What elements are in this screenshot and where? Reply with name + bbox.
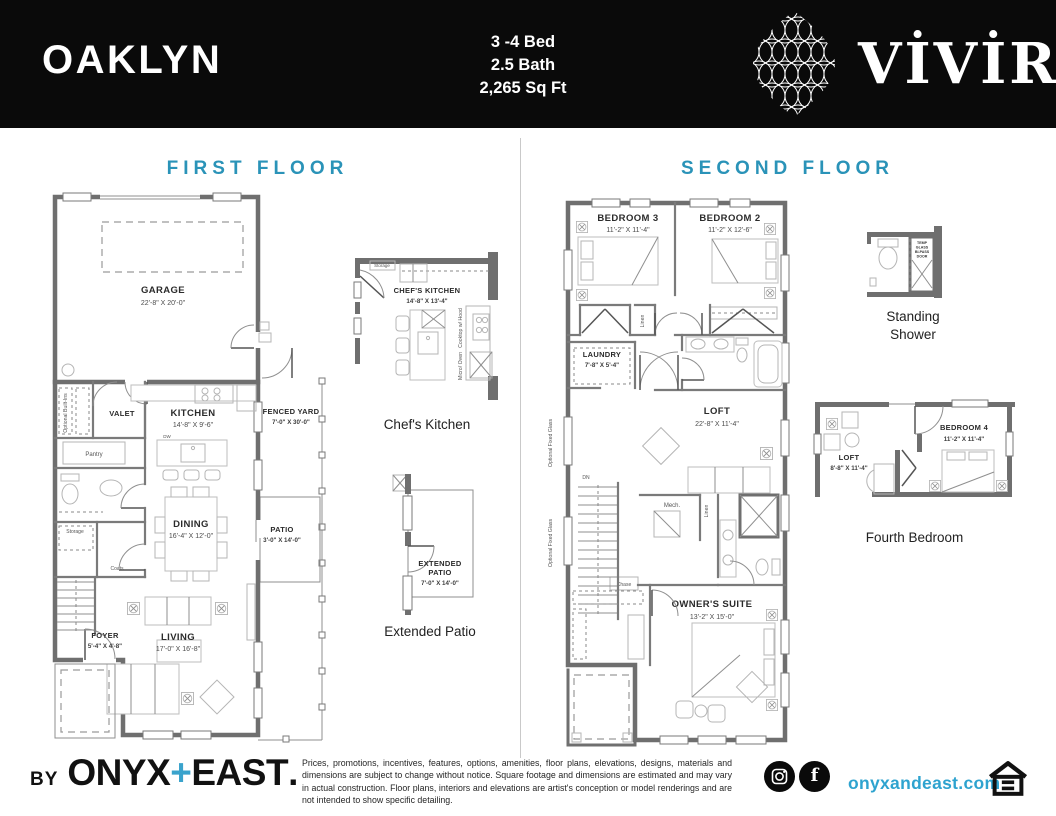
bedroom4-dims: 11'-2" X 11'-4" bbox=[944, 436, 985, 443]
dining-label: DINING bbox=[173, 519, 209, 530]
bedroom2-label: BEDROOM 2 bbox=[699, 213, 760, 224]
laundry-dims: 7'-8" X 5'-4" bbox=[585, 362, 619, 369]
shower-note-3: BI-PASS bbox=[915, 250, 930, 254]
chefs-kitchen-dims: 14'-8" X 13'-4" bbox=[406, 298, 447, 305]
vivir-flower-of-life-icon bbox=[746, 8, 842, 120]
laundry: LAUNDRY 7'-8" X 5'-4" bbox=[568, 342, 635, 388]
loft4-label: LOFT bbox=[839, 453, 860, 462]
balcony bbox=[568, 670, 635, 745]
valet-label: VALET bbox=[109, 409, 135, 418]
chefs-kitchen-label: CHEF'S KITCHEN bbox=[394, 286, 461, 295]
second-floor-title: SECOND FLOOR bbox=[670, 158, 905, 180]
garage: GARAGE 22'-8" X 20'-0" bbox=[62, 222, 271, 376]
brochure-page: OAKLYN 3 -4 Bed 2.5 Bath 2,265 Sq Ft bbox=[0, 0, 1056, 816]
hall-bathroom bbox=[655, 335, 785, 390]
kitchen: KITCHEN 14'-8" X 9'-6" DW bbox=[131, 385, 256, 480]
stairs-down: Chase DN bbox=[578, 475, 638, 619]
stat-baths: 2.5 Bath bbox=[408, 54, 638, 77]
dining-area: DINING 16'-4" X 12'-0" bbox=[155, 487, 227, 581]
fenced-yard-dims: 7'-0" X 30'-0" bbox=[272, 419, 310, 426]
mech-label: Mech. bbox=[664, 503, 681, 509]
fenced-yard-area: FENCED YARD 7'-0" X 30'-0" PATIO 3'-0" X… bbox=[258, 348, 325, 742]
shower-note-4: DOOR bbox=[917, 255, 928, 259]
linen-label-2: Linen bbox=[704, 505, 710, 518]
stat-sqft: 2,265 Sq Ft bbox=[408, 77, 638, 100]
fourth-bedroom-caption: Fourth Bedroom bbox=[812, 529, 1017, 547]
loft-label: LOFT bbox=[704, 406, 730, 417]
chefs-kitchen-caption: Chef's Kitchen bbox=[352, 416, 502, 434]
onyx-east-logo: BY ONYX + EAST . bbox=[30, 752, 298, 794]
east-label: EAST bbox=[191, 752, 288, 794]
patio-label: PATIO bbox=[270, 525, 293, 534]
front-porch bbox=[55, 664, 115, 738]
owner-bath: Linen bbox=[704, 495, 785, 585]
fenced-yard-label: FENCED YARD bbox=[263, 407, 320, 416]
owners-suite: OWNER'S SUITE 13'-2" X 15'-0" bbox=[638, 585, 778, 722]
powder-room bbox=[55, 474, 145, 522]
extended-patio-dims: 7'-0" X 14'-0" bbox=[421, 580, 459, 587]
standing-shower-inset: TEMP GLASS BI-PASS DOOR bbox=[862, 224, 962, 309]
kitchen-dims: 14'-8" X 9'-6" bbox=[173, 422, 214, 429]
mech-room: Mech. bbox=[640, 495, 700, 540]
loft-dims: 22'-8" X 11'-4" bbox=[695, 421, 739, 428]
optional-glass-label-2: Optional Fixed Glass bbox=[548, 519, 554, 568]
living-area: LIVING 17'-0" X 16'-8" FOYER 5'-4" X 4'-… bbox=[88, 584, 255, 714]
patio-dims: 3'-0" X 14'-0" bbox=[263, 537, 301, 544]
foyer-dims: 5'-4" X 4'-8" bbox=[88, 643, 122, 650]
dining-dims: 16'-4" X 12'-0" bbox=[169, 533, 214, 540]
owners-suite-label: OWNER'S SUITE bbox=[672, 599, 753, 610]
upstairs-hall bbox=[640, 352, 678, 390]
equal-housing-icon bbox=[986, 760, 1030, 803]
bedroom-3: BEDROOM 3 11'-2" X 11'-4" Linen bbox=[568, 203, 677, 335]
fourth-bedroom-inset: LOFT 8'-8" X 11'-4" BEDROOM 4 11'-2" X 1… bbox=[812, 392, 1017, 517]
living-dims: 17'-0" X 16'-8" bbox=[156, 646, 201, 653]
micro-oven-label: Micro/ Oven bbox=[458, 352, 464, 380]
shower-note-2: GLASS bbox=[916, 246, 929, 250]
living-label: LIVING bbox=[161, 632, 195, 643]
bedroom4-label: BEDROOM 4 bbox=[940, 423, 989, 432]
cooktop-label: Cooktop w/ Hood bbox=[458, 308, 464, 348]
onyx-label: ONYX bbox=[67, 752, 170, 794]
website-link[interactable]: onyxandeast.com bbox=[848, 773, 1000, 794]
linen-label-1: Linen bbox=[640, 315, 646, 328]
extended-patio-label-2: PATIO bbox=[428, 568, 451, 577]
optional-builtins-label: Optional Built-Ins bbox=[63, 393, 69, 433]
facebook-icon[interactable]: f bbox=[799, 761, 830, 792]
owners-suite-dims: 13'-2" X 15'-0" bbox=[690, 614, 735, 621]
inset-storage-label: Storage bbox=[374, 263, 390, 268]
vivir-logo: VİVİR bbox=[746, 8, 1056, 120]
coats-label: Coats bbox=[110, 566, 124, 572]
legal-disclaimer: Prices, promotions, incentives, features… bbox=[302, 757, 732, 807]
header-bar: OAKLYN 3 -4 Bed 2.5 Bath 2,265 Sq Ft bbox=[0, 0, 1056, 128]
extended-patio-inset: EXTENDED PATIO 7'-0" X 14'-0" bbox=[375, 472, 485, 617]
period-mark: . bbox=[288, 752, 298, 794]
foyer-label: FOYER bbox=[91, 631, 119, 640]
second-floor-plan: Optional Fixed Glass Optional Fixed Glas… bbox=[540, 195, 795, 755]
bedroom3-dims: 11'-2" X 11'-4" bbox=[606, 227, 650, 234]
bedroom-2: BEDROOM 2 11'-2" X 12'-6" bbox=[675, 213, 785, 335]
brand-name: VİVİR bbox=[858, 31, 1056, 97]
optional-glass-label-1: Optional Fixed Glass bbox=[548, 419, 554, 468]
stat-beds: 3 -4 Bed bbox=[408, 31, 638, 54]
chefs-kitchen-inset: Storage CHEF'S KITCHEN 14'-8" X 13'-4" C… bbox=[352, 248, 502, 408]
laundry-label: LAUNDRY bbox=[583, 350, 622, 359]
garage-label: GARAGE bbox=[141, 285, 185, 296]
loft4-dims: 8'-8" X 11'-4" bbox=[830, 465, 867, 472]
bedroom3-label: BEDROOM 3 bbox=[597, 213, 658, 224]
storage-label: Storage bbox=[66, 529, 84, 535]
pantry-label: Pantry bbox=[85, 452, 102, 458]
plan-name: OAKLYN bbox=[42, 38, 222, 83]
walk-in-closet bbox=[573, 591, 644, 659]
plan-stats: 3 -4 Bed 2.5 Bath 2,265 Sq Ft bbox=[408, 31, 638, 100]
dn-label: DN bbox=[582, 475, 590, 481]
extended-patio-label-1: EXTENDED bbox=[418, 559, 462, 568]
shower-note-1: TEMP bbox=[917, 241, 928, 245]
garage-dims: 22'-8" X 20'-0" bbox=[141, 300, 186, 307]
by-label: BY bbox=[30, 769, 58, 791]
instagram-icon[interactable] bbox=[764, 761, 795, 792]
column-divider bbox=[520, 138, 521, 758]
pantry: Pantry bbox=[55, 438, 145, 468]
dishwasher-label: DW bbox=[163, 434, 171, 439]
first-floor-title: FIRST FLOOR bbox=[140, 158, 375, 180]
first-floor-plan: FENCED YARD 7'-0" X 30'-0" PATIO 3'-0" X… bbox=[45, 192, 340, 752]
bedroom2-dims: 11'-2" X 12'-6" bbox=[708, 227, 752, 234]
loft: LOFT 22'-8" X 11'-4" bbox=[643, 406, 773, 493]
standing-shower-caption: Standing Shower bbox=[872, 308, 954, 344]
plus-mark: + bbox=[170, 752, 191, 794]
kitchen-label: KITCHEN bbox=[170, 408, 215, 419]
extended-patio-caption: Extended Patio bbox=[375, 623, 485, 641]
